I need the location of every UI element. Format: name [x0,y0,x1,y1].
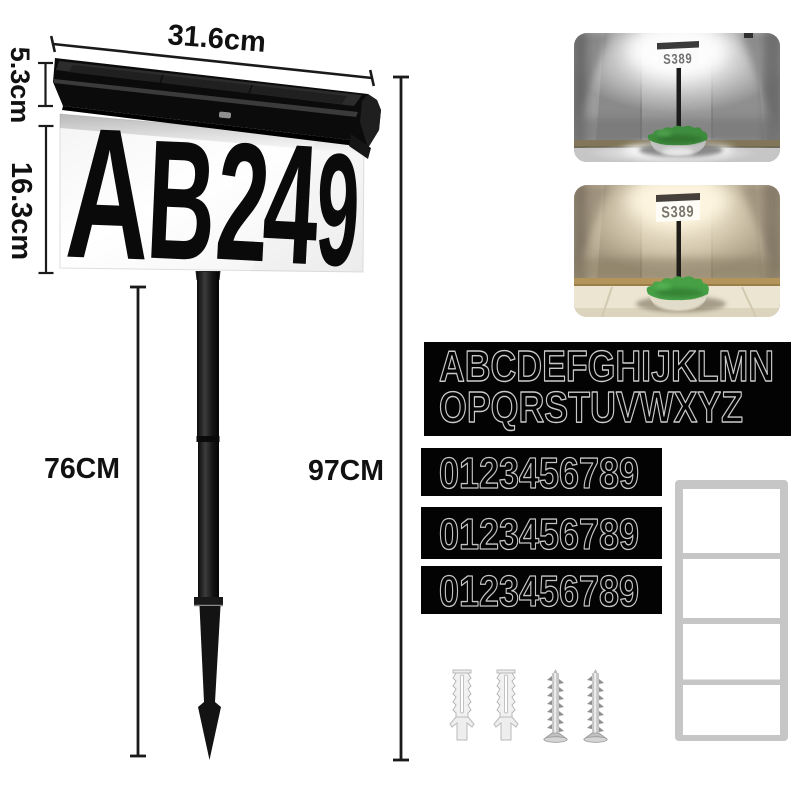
svg-text:S389: S389 [663,51,693,67]
svg-text:76CM: 76CM [44,453,120,485]
svg-text:OPQRSTUVWXYZ: OPQRSTUVWXYZ [439,383,743,432]
svg-text:97CM: 97CM [308,455,384,487]
svg-text:0123456789: 0123456789 [439,567,639,616]
svg-text:16.3cm: 16.3cm [5,162,37,260]
svg-text:S389: S389 [661,203,695,222]
svg-text:0123456789: 0123456789 [439,510,639,559]
svg-text:5.3cm: 5.3cm [5,47,35,124]
svg-text:0123456789: 0123456789 [439,449,639,498]
